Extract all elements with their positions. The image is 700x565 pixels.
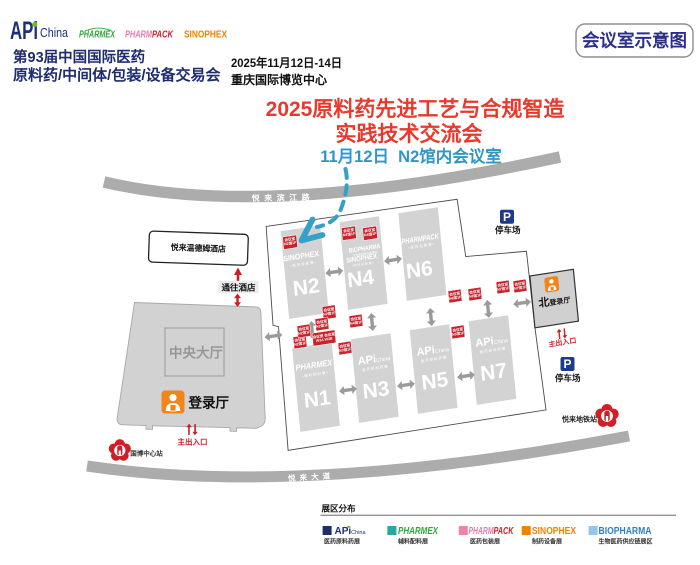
svg-text:主出入口: 主出入口 xyxy=(548,336,577,349)
svg-text:悦来温德姆酒店: 悦来温德姆酒店 xyxy=(171,242,226,254)
svg-text:停车场: 停车场 xyxy=(555,373,581,383)
svg-text:N7: N7 xyxy=(479,359,508,386)
svg-text:SINOPHEX: SINOPHEX xyxy=(532,526,576,537)
svg-text:APi: APi xyxy=(10,17,38,45)
svg-text:中央大厅: 中央大厅 xyxy=(169,345,223,361)
svg-text:第93届中国国际医药: 第93届中国国际医药 xyxy=(13,48,145,66)
svg-text:N5: N5 xyxy=(420,368,449,395)
svg-text:11月12日 N2馆内会议室: 11月12日 N2馆内会议室 xyxy=(320,146,502,166)
svg-text:N6: N6 xyxy=(405,257,434,284)
svg-text:PHARMPACK: PHARMPACK xyxy=(469,526,515,537)
svg-text:制药设备展: 制药设备展 xyxy=(532,538,562,546)
svg-text:医药原料药展: 医药原料药展 xyxy=(324,538,360,546)
svg-text:实践技术交流会: 实践技术交流会 xyxy=(336,122,483,146)
svg-text:BIOPHARMA: BIOPHARMA xyxy=(599,526,652,537)
svg-text:停车场: 停车场 xyxy=(495,225,521,235)
svg-text:辅料配料展: 辅料配料展 xyxy=(398,538,428,546)
svg-text:展区分布: 展区分布 xyxy=(321,504,357,514)
svg-text:2025年11月12日-14日: 2025年11月12日-14日 xyxy=(231,55,342,70)
svg-text:N2: N2 xyxy=(292,274,321,301)
svg-text:原料药/中间体/包装/设备交易会: 原料药/中间体/包装/设备交易会 xyxy=(13,66,221,84)
svg-text:医药包装展: 医药包装展 xyxy=(470,538,500,546)
svg-text:N3: N3 xyxy=(362,377,391,404)
svg-text:重庆国际博览中心: 重庆国际博览中心 xyxy=(231,72,327,87)
svg-text:PHARM: PHARM xyxy=(125,29,152,41)
svg-text:生物医药供应链展区: 生物医药供应链展区 xyxy=(599,538,653,546)
svg-text:通往酒店: 通往酒店 xyxy=(221,282,256,292)
svg-text:悦来滨江路: 悦来滨江路 xyxy=(252,192,315,203)
svg-text:2025原料药先进工艺与合规智造: 2025原料药先进工艺与合规智造 xyxy=(266,97,566,121)
svg-text:登录厅: 登录厅 xyxy=(188,395,230,411)
svg-text:N1: N1 xyxy=(303,386,332,413)
svg-text:PHARMEX: PHARMEX xyxy=(398,526,439,537)
svg-text:国博中心站: 国博中心站 xyxy=(130,449,163,458)
svg-text:SINOPHEX: SINOPHEX xyxy=(184,29,227,41)
svg-text:APiChina: APiChina xyxy=(335,526,367,537)
svg-text:China: China xyxy=(40,25,69,40)
svg-text:PACK: PACK xyxy=(152,29,174,41)
svg-text:主出入口: 主出入口 xyxy=(178,437,208,447)
svg-text:会议室示意图: 会议室示意图 xyxy=(582,31,687,51)
svg-text:悦来地铁站: 悦来地铁站 xyxy=(562,415,597,424)
svg-text:N4: N4 xyxy=(346,266,375,293)
